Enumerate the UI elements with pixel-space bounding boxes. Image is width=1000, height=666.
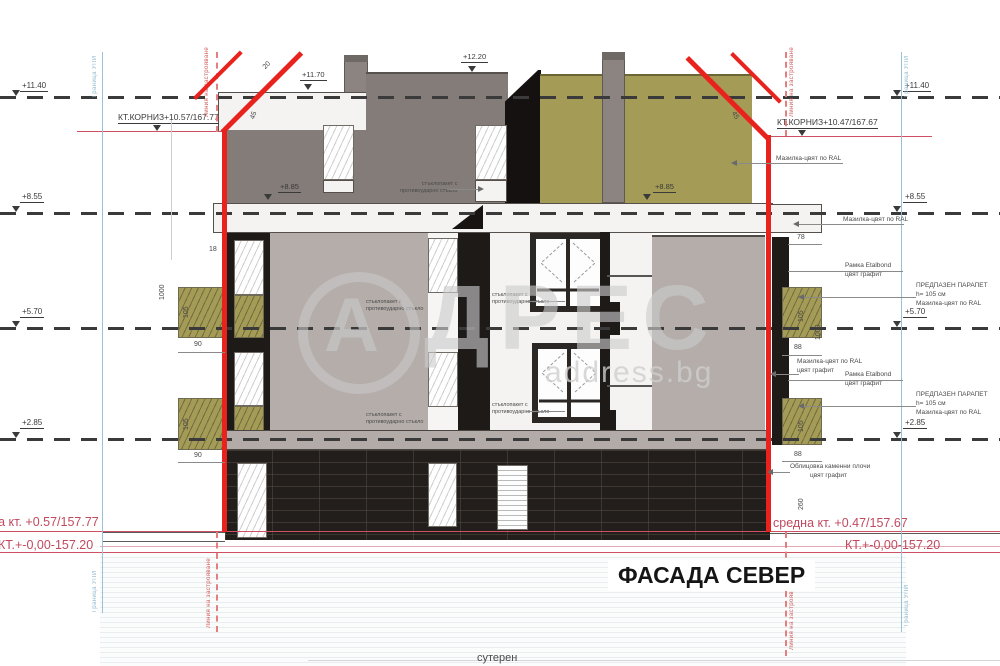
pier-left-panel-1	[234, 295, 264, 338]
dim-right-88-1: 88	[794, 344, 802, 351]
elev-marker	[893, 90, 901, 96]
cornice-line-left	[77, 131, 225, 132]
leader-arrow	[798, 294, 804, 300]
elev-marker	[893, 432, 901, 438]
pier-left-window-1	[234, 240, 264, 295]
upi-boundary-left	[102, 52, 103, 613]
watermark-site: address.bg	[545, 356, 713, 390]
elev-marker	[893, 206, 901, 212]
cornice-slab-band	[213, 203, 773, 233]
chimney-left-cap	[344, 55, 368, 62]
note-frame-line2: цвят графит	[845, 271, 891, 280]
dim-right-88-2: 88	[794, 451, 802, 458]
elev-roof-center: +12.20	[461, 52, 488, 63]
dim-line	[178, 352, 225, 353]
building-line-left-top	[216, 52, 218, 132]
witness-line-left	[171, 120, 172, 260]
elev-marker	[264, 194, 272, 200]
dim-left-1000: 1000	[159, 284, 166, 300]
elev-right-2-85: +2.85	[903, 418, 927, 429]
elev-marker	[468, 66, 476, 72]
dim-left-90-2: 90	[194, 452, 202, 459]
watermark-logo-letter: А	[324, 288, 379, 364]
leader-arrow	[767, 469, 773, 475]
leader-arrow	[793, 221, 799, 227]
note-parapet-2: ПРЕДПАЗЕН ПАРАПЕТ h= 105 см Мазилка-цвят…	[916, 391, 988, 417]
elev-marker	[12, 321, 20, 327]
dim-left-105-1: 105	[183, 306, 190, 318]
dim-right-1000: 1000	[815, 324, 822, 340]
elev-marker	[12, 432, 20, 438]
dim-right-105-2: 105	[798, 420, 805, 432]
upi-label-left-top: Граница УПИ	[92, 55, 98, 97]
zero-level-label-right: КТ.+-0,00-157.20	[845, 538, 940, 552]
note-plaster-2: Мазилка-цвят по RAL	[843, 216, 908, 225]
leader	[803, 297, 916, 298]
elev-marker	[643, 194, 651, 200]
ground-window-2	[497, 465, 528, 530]
dim-line	[178, 462, 225, 463]
elev-left-2-85: +2.85	[20, 418, 44, 429]
elev-left-8-55: +8.55	[20, 192, 44, 203]
building-line-right-bottom	[785, 532, 787, 656]
leader	[775, 374, 799, 375]
note-window-m5: стъклопакет с противоударно стъкло	[366, 412, 423, 427]
dim-left-105-2: 105	[183, 418, 190, 430]
dim-line	[782, 461, 822, 462]
dim-left-90-1: 90	[194, 341, 202, 348]
building-line-label-right-top: Линия на застрояване	[789, 55, 795, 117]
elev-right-5-70: +5.70	[903, 307, 927, 318]
chimney-right	[602, 52, 625, 203]
note-cladding: Облицовка каменни плочи цвят графит	[790, 463, 870, 481]
upi-boundary-right	[901, 52, 902, 632]
elev-marker	[893, 321, 901, 327]
building-line-right-top	[785, 52, 787, 136]
chimney-left	[344, 55, 368, 95]
datum-line-11-40	[0, 96, 1000, 99]
elev-left-11-40: +11.40	[20, 81, 48, 92]
cornice-line-right	[770, 136, 932, 137]
envelope-left-vertical	[222, 130, 227, 532]
datum-line-2-85	[0, 438, 1000, 441]
leader-arrow	[770, 371, 776, 377]
note-frame-line1: Рамка Etalbond	[845, 262, 891, 271]
dim-line	[782, 355, 822, 356]
dim-line	[788, 244, 822, 245]
leader	[788, 271, 903, 272]
elev-marker	[304, 84, 312, 90]
leader	[788, 380, 903, 381]
slab-edge-right	[770, 533, 1000, 534]
elev-roof-left: +11.70	[300, 70, 327, 81]
datum-line-8-55	[0, 212, 1000, 215]
ground-door	[237, 463, 267, 538]
watermark-letters: ДРЕС	[424, 272, 719, 364]
elev-marker	[12, 206, 20, 212]
attic-window-right	[475, 125, 507, 180]
zero-level-line	[0, 552, 1000, 553]
elev-attic-left: +8.85	[278, 182, 301, 193]
leader	[803, 406, 916, 407]
cornice-label-right: КТ.КОРНИЗ+10.47/167.67	[777, 117, 878, 129]
note-window-m4: стъклопакет с противоударно стъкло	[492, 402, 549, 417]
avg-level-line	[0, 531, 1000, 532]
dim-20: 20	[262, 60, 272, 70]
leader-arrow	[798, 403, 804, 409]
avg-level-label-left: средна кт. +0.57/157.77	[0, 515, 99, 529]
note-plaster-1: Мазилка-цвят по RAL	[776, 155, 841, 164]
zero-level-label-left: КТ.+-0,00-157.20	[0, 538, 93, 552]
leader-arrow	[478, 186, 484, 192]
dim-right-260: 260	[798, 498, 805, 510]
leader	[447, 189, 479, 190]
dim-18: 18	[209, 246, 217, 253]
attic-window-left	[323, 125, 354, 180]
basement-label: сутерен	[477, 652, 517, 664]
slab-edge-left	[102, 532, 225, 542]
drawing-title: ФАСАДА СЕВЕР	[608, 560, 815, 591]
attic-window-left-sill	[323, 180, 354, 193]
pier-left-window-2	[234, 352, 264, 406]
dim-right-105-1: 105	[798, 310, 805, 322]
facade-drawing-sheet: средна кт. +0.57/157.77 КТ.+-0,00-157.20…	[0, 0, 1000, 666]
upi-label-right-bottom: Граница УПИ	[904, 580, 910, 626]
elev-right-8-55: +8.55	[903, 192, 927, 203]
upi-label-left-bottom: Граница УПИ	[92, 566, 98, 612]
lower-sheet-line	[308, 660, 1000, 661]
cornice-box-right	[768, 204, 822, 233]
roof-black-wedge	[505, 70, 541, 207]
dim-right-78: 78	[797, 234, 805, 241]
elev-attic-right: +8.85	[653, 182, 676, 193]
chimney-right-cap	[602, 52, 625, 60]
avg-level-label-right: средна кт. +0.47/157.67	[773, 516, 908, 530]
building-line-label-left-bottom: Линия на застрояване	[206, 558, 212, 628]
note-parapet-1: ПРЕДПАЗЕН ПАРАПЕТ h= 105 см Мазилка-цвят…	[916, 282, 988, 308]
leader	[772, 472, 790, 473]
elev-left-5-70: +5.70	[20, 307, 44, 318]
ground-window-1	[428, 463, 457, 527]
building-line-left-bottom	[216, 532, 218, 632]
leader	[527, 411, 565, 412]
upi-label-right-top: Граница УПИ	[904, 55, 910, 97]
elev-marker	[12, 90, 20, 96]
leader-arrow	[731, 160, 737, 166]
